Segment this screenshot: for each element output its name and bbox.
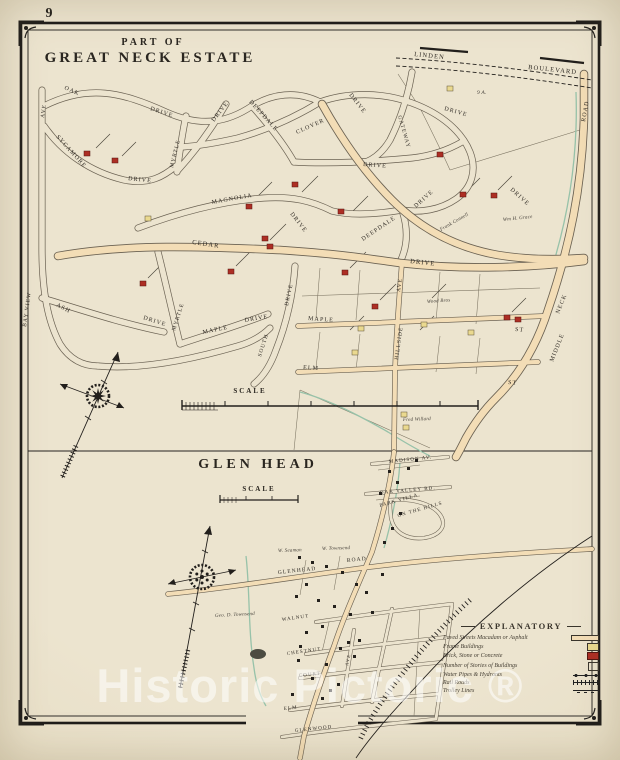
legend-flourish-right [567, 626, 581, 627]
street-label: ROAD [347, 556, 368, 564]
legend-symbol-rail [573, 680, 599, 685]
owner-label: W. Townsend [322, 546, 351, 552]
building [353, 655, 356, 658]
compass-star [90, 388, 106, 404]
map2-scale-label: SCALE [242, 485, 275, 493]
legend-symbol-stories [588, 662, 599, 671]
legend-symbol-paved [571, 635, 599, 641]
owner-label: Frank Connell [439, 212, 470, 233]
legend-row: Water Pipes & Hydrants [443, 672, 599, 678]
legend-row: Paved Streets Macadam or Asphalt [443, 635, 599, 641]
stream-lines [300, 92, 576, 456]
legend-row-label: Rail Roads [443, 680, 470, 686]
explanatory-legend: EXPLANATORY Paved Streets Macadam or Asp… [443, 621, 599, 694]
brick-building [112, 158, 118, 163]
building [297, 659, 300, 662]
legend-row: Frame Buildings [443, 643, 599, 651]
building [347, 641, 350, 644]
map1-title-line1: PART OF [121, 37, 184, 48]
compass-hub [195, 570, 208, 585]
owner-label: Wood Bros [427, 298, 451, 305]
street-label: CLOVER [295, 118, 325, 136]
building [396, 481, 399, 484]
building [295, 595, 298, 598]
legend-rows: Paved Streets Macadam or AsphaltFrame Bu… [443, 635, 599, 694]
brick-building [246, 204, 252, 209]
building [358, 639, 361, 642]
buildings-map2 [291, 459, 418, 700]
brick-building [491, 193, 497, 198]
owner-label: Wm H. Grace [503, 215, 534, 223]
brick-building [228, 269, 234, 274]
frame-building [468, 330, 474, 335]
building [299, 645, 302, 648]
legend-row-label: Water Pipes & Hydrants [443, 672, 502, 678]
frame-buildings-map1 [145, 86, 474, 430]
brick-building [437, 152, 443, 157]
owner-labels-map2: W. SeamanW. TownsendGeo. D. Townsend [215, 546, 351, 619]
street-label: BAY VIEW [22, 291, 33, 327]
street-label: ST [508, 380, 518, 387]
legend-row-label: Brick, Stone or Concrete [443, 653, 502, 659]
street-label: DRIVE [288, 212, 307, 234]
building [333, 605, 336, 608]
compass-rose-map1 [60, 352, 124, 478]
brick-building [262, 236, 268, 241]
legend-row-label: Paved Streets Macadam or Asphalt [443, 635, 528, 641]
frame-building [358, 326, 364, 331]
building [317, 599, 320, 602]
building [381, 573, 384, 576]
brick-building [460, 192, 466, 197]
frame-building [403, 425, 409, 430]
street-label: MAPLE [308, 316, 334, 324]
brick-building [342, 270, 348, 275]
building [321, 625, 324, 628]
border-gap [246, 712, 358, 728]
legend-flourish-left [461, 626, 475, 627]
legend-symbol-trolley [573, 688, 599, 693]
building [325, 565, 328, 568]
map2-title: GLEN HEAD [198, 457, 318, 472]
building [388, 470, 391, 473]
legend-title: EXPLANATORY [480, 621, 562, 631]
street-label: AVE [396, 278, 404, 293]
map-glen-head: MADISON AV.OAK VALLEY RD.PARK VILLAON TH… [168, 452, 592, 758]
brick-building [140, 281, 146, 286]
street-label: NECK [555, 293, 568, 314]
building [321, 697, 324, 700]
street-labels-map2: MADISON AV.OAK VALLEY RD.PARK VILLAON TH… [278, 455, 444, 734]
legend-symbol-frame [587, 643, 599, 651]
map-great-neck-estate: LINDENBOULEVARDROADNECKMIDDLEOAKDRIVEAVE… [22, 37, 592, 478]
brick-building [515, 317, 521, 322]
owner-label: 9 A. [477, 90, 487, 96]
building [407, 467, 410, 470]
building [383, 541, 386, 544]
legend-row: Rail Roads [443, 680, 599, 686]
legend-row-label: Frame Buildings [443, 644, 484, 650]
building [339, 647, 342, 650]
street-label: DEEPDALE [361, 215, 397, 242]
street-label: CHESTNUT [287, 647, 322, 657]
building [391, 527, 394, 530]
street-label: DRIVE [244, 314, 269, 324]
building [341, 571, 344, 574]
building [311, 561, 314, 564]
building [371, 611, 374, 614]
street-label: MIDDLE [549, 333, 566, 363]
roads-glen-head [168, 452, 592, 758]
legend-symbol-brick [587, 652, 599, 660]
owner-label: Fred Willard [402, 417, 431, 423]
frame-building [401, 412, 407, 417]
building [365, 591, 368, 594]
frame-building [447, 86, 453, 91]
street-label: GATEWAY [396, 115, 411, 149]
roads-unpaved [42, 72, 473, 384]
street-label: ST [515, 327, 525, 334]
legend-row: Trolley Lines [443, 688, 599, 694]
legend-row: Number of Stories of Buildings [443, 662, 599, 671]
owner-label: W. Seaman [278, 548, 302, 554]
building [291, 693, 294, 696]
pond [250, 649, 266, 659]
scale-bar-map1 [182, 400, 478, 410]
legend-row: Brick, Stone or Concrete [443, 652, 599, 660]
brick-building [372, 304, 378, 309]
street-label: DRIVE [509, 187, 531, 207]
building [305, 631, 308, 634]
frame-building [421, 322, 427, 327]
map1-title-line2: GREAT NECK ESTATE [45, 50, 256, 66]
building [298, 556, 301, 559]
frame-building [352, 350, 358, 355]
building [349, 613, 352, 616]
street-label: DRIVE [443, 106, 468, 118]
legend-row-label: Number of Stories of Buildings [443, 663, 517, 669]
brick-building [338, 209, 344, 214]
atlas-plate-page: 9 [0, 0, 620, 760]
building [355, 583, 358, 586]
legend-title-row: EXPLANATORY [443, 621, 599, 631]
street-label: ELM [303, 365, 319, 372]
page-number: 9 [46, 6, 53, 21]
frame-building [145, 216, 151, 221]
building [329, 689, 332, 692]
street-label: WALNUT [282, 614, 310, 623]
scale-bar-map2 [220, 495, 298, 503]
brick-building [292, 182, 298, 187]
legend-symbol-water [573, 673, 599, 678]
brick-building [84, 151, 90, 156]
compass-rose-map2 [168, 526, 236, 688]
map1-scale-label: SCALE [233, 387, 266, 395]
street-label: SYCAMORE [55, 134, 88, 169]
building [305, 583, 308, 586]
building [337, 683, 340, 686]
street-label: AVE [40, 104, 48, 119]
brick-building [267, 244, 273, 249]
brick-building [504, 315, 510, 320]
legend-row-label: Trolley Lines [443, 688, 474, 694]
building [325, 663, 328, 666]
